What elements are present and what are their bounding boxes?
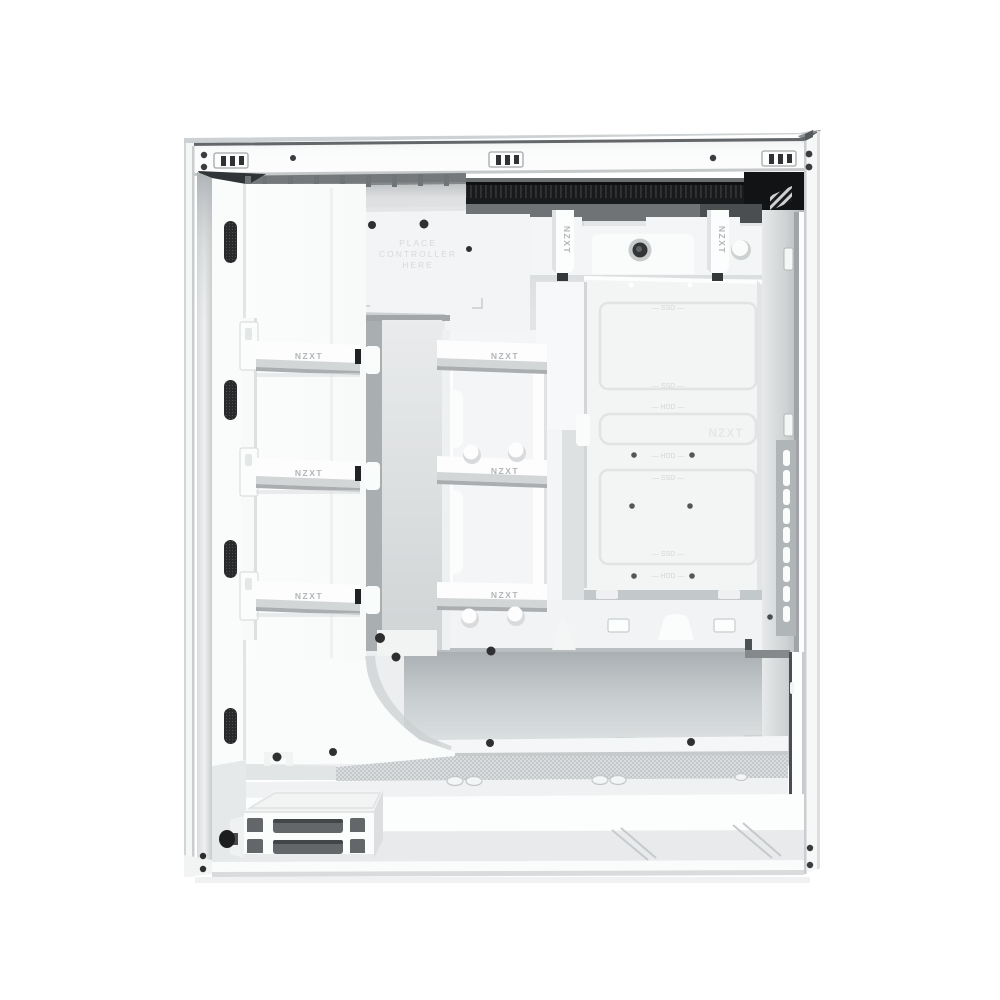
svg-text:NZXT: NZXT [708, 426, 743, 440]
svg-text:— SSD —: — SSD — [652, 475, 684, 482]
svg-text:NZXT: NZXT [491, 590, 519, 600]
svg-text:NZXT: NZXT [295, 591, 323, 601]
svg-text:NZXT: NZXT [295, 468, 323, 478]
svg-text:— SSD —: — SSD — [652, 305, 684, 312]
svg-text:NZXT: NZXT [295, 351, 323, 361]
svg-text:— SSD —: — SSD — [652, 383, 684, 390]
svg-text:NZXT: NZXT [491, 466, 519, 476]
svg-text:NZXT: NZXT [562, 226, 572, 254]
svg-text:— HDD —: — HDD — [651, 573, 684, 580]
svg-text:CONTROLLER: CONTROLLER [379, 249, 457, 259]
svg-text:— HDD —: — HDD — [651, 404, 684, 411]
svg-text:NZXT: NZXT [717, 226, 727, 254]
svg-text:— HDD —: — HDD — [651, 453, 684, 460]
svg-text:HERE: HERE [402, 260, 434, 270]
svg-text:— SSD —: — SSD — [652, 551, 684, 558]
svg-text:NZXT: NZXT [491, 351, 519, 361]
svg-text:PLACE: PLACE [399, 238, 437, 248]
